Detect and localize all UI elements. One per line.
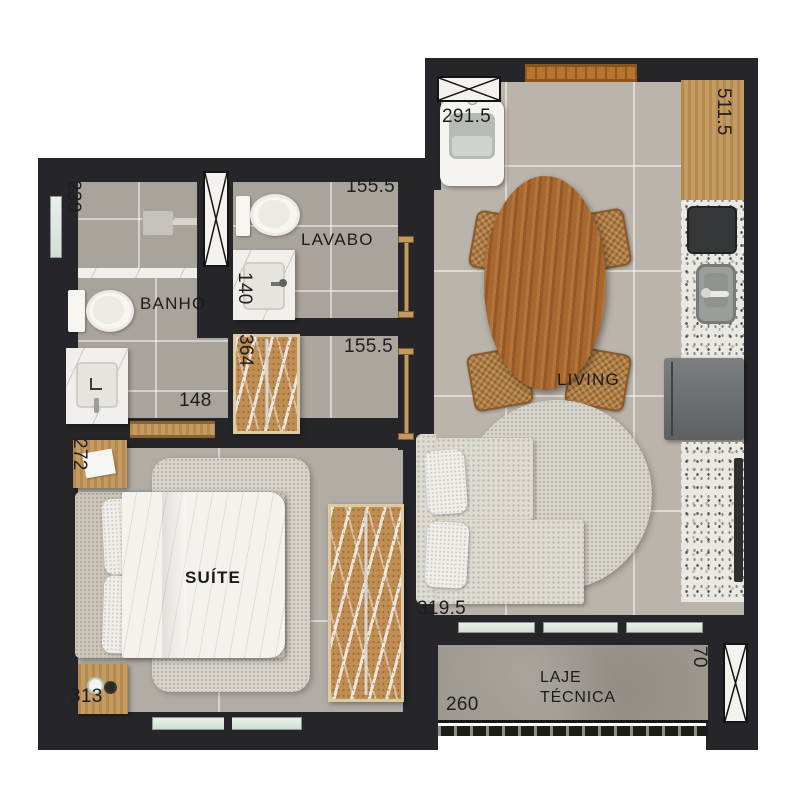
tv xyxy=(734,458,743,582)
door-leaf xyxy=(404,242,409,312)
tile-grout-line xyxy=(330,336,332,418)
banho-window xyxy=(50,196,62,258)
dim-hall-wardrobe-label: 364 xyxy=(234,334,256,367)
laje-grille xyxy=(438,726,708,736)
tile-grout-line xyxy=(138,182,140,270)
toilet xyxy=(250,194,300,236)
dim-laje-width-label: 260 xyxy=(446,694,479,716)
sink-drain xyxy=(90,378,102,390)
room-label-lavabo: LAVABO xyxy=(301,230,374,250)
dim-nightstand-top-label: 272 xyxy=(68,438,90,471)
faucet xyxy=(94,398,99,413)
room-label-banho: BANHO xyxy=(140,294,206,314)
wall-right xyxy=(744,58,758,638)
shower-floor xyxy=(78,182,197,270)
door-leaf xyxy=(404,354,409,434)
duct-x-icon-top xyxy=(437,76,501,102)
faucet xyxy=(279,279,287,287)
faucet-base xyxy=(701,288,711,298)
door-jamb xyxy=(398,311,414,318)
dim-lavabo-sink-label: 140 xyxy=(233,272,255,305)
wall-bench xyxy=(525,64,637,82)
laje-label-line1: LAJE xyxy=(540,668,616,688)
tile-grout-line xyxy=(78,340,228,342)
floor-plan: 291.5 511.5 230 155.5 LAVABO 140 BANHO 1… xyxy=(0,0,800,800)
door-jamb xyxy=(398,433,414,440)
room-label-suite: SUÍTE xyxy=(185,568,241,588)
fridge-door-seam xyxy=(671,362,673,436)
dim-sofa-label: 319.5 xyxy=(417,598,466,620)
plant xyxy=(104,681,117,694)
dim-laje-depth-label: 70 xyxy=(688,646,710,668)
living-window-pane xyxy=(626,622,703,633)
dim-banho-vanity-label: 148 xyxy=(179,390,212,412)
room-label-laje-tecnica: LAJE TÉCNICA xyxy=(540,668,616,708)
suite-wardrobe xyxy=(328,504,404,702)
dim-shower-label: 230 xyxy=(62,180,84,213)
fridge xyxy=(664,358,744,440)
sofa-pillow xyxy=(424,449,468,516)
toilet-tank xyxy=(68,290,85,332)
laje-label-line2: TÉCNICA xyxy=(540,688,616,708)
toilet-tank xyxy=(236,196,250,236)
sofa-pillow xyxy=(424,521,469,589)
duct-x-icon-laje xyxy=(723,643,748,723)
room-label-living: LIVING xyxy=(557,370,620,390)
toilet xyxy=(86,290,134,332)
suite-window-mullion xyxy=(224,715,232,732)
duct-x-icon-banho xyxy=(203,171,229,267)
kitchen-sink xyxy=(696,264,736,324)
duvet-fold xyxy=(162,492,186,658)
shower-head xyxy=(142,210,174,236)
shower-threshold xyxy=(78,268,197,278)
vanity-counter xyxy=(66,348,128,424)
tank-board xyxy=(452,136,492,156)
dim-hall-width-label: 155.5 xyxy=(344,336,393,358)
shower-arm xyxy=(173,220,197,225)
dim-tank-label: 291.5 xyxy=(442,106,491,128)
dim-kitchen-counter-label: 511.5 xyxy=(712,88,734,136)
cooktop xyxy=(687,206,737,254)
living-window-pane xyxy=(458,622,535,633)
wall-laje-left xyxy=(403,645,438,750)
dim-lavabo-width-label: 155.5 xyxy=(346,176,395,198)
entry-bench xyxy=(130,421,215,438)
living-window-pane xyxy=(543,622,618,633)
dim-nightstand-bottom-label: 313 xyxy=(70,686,103,708)
dining-table xyxy=(484,176,606,390)
